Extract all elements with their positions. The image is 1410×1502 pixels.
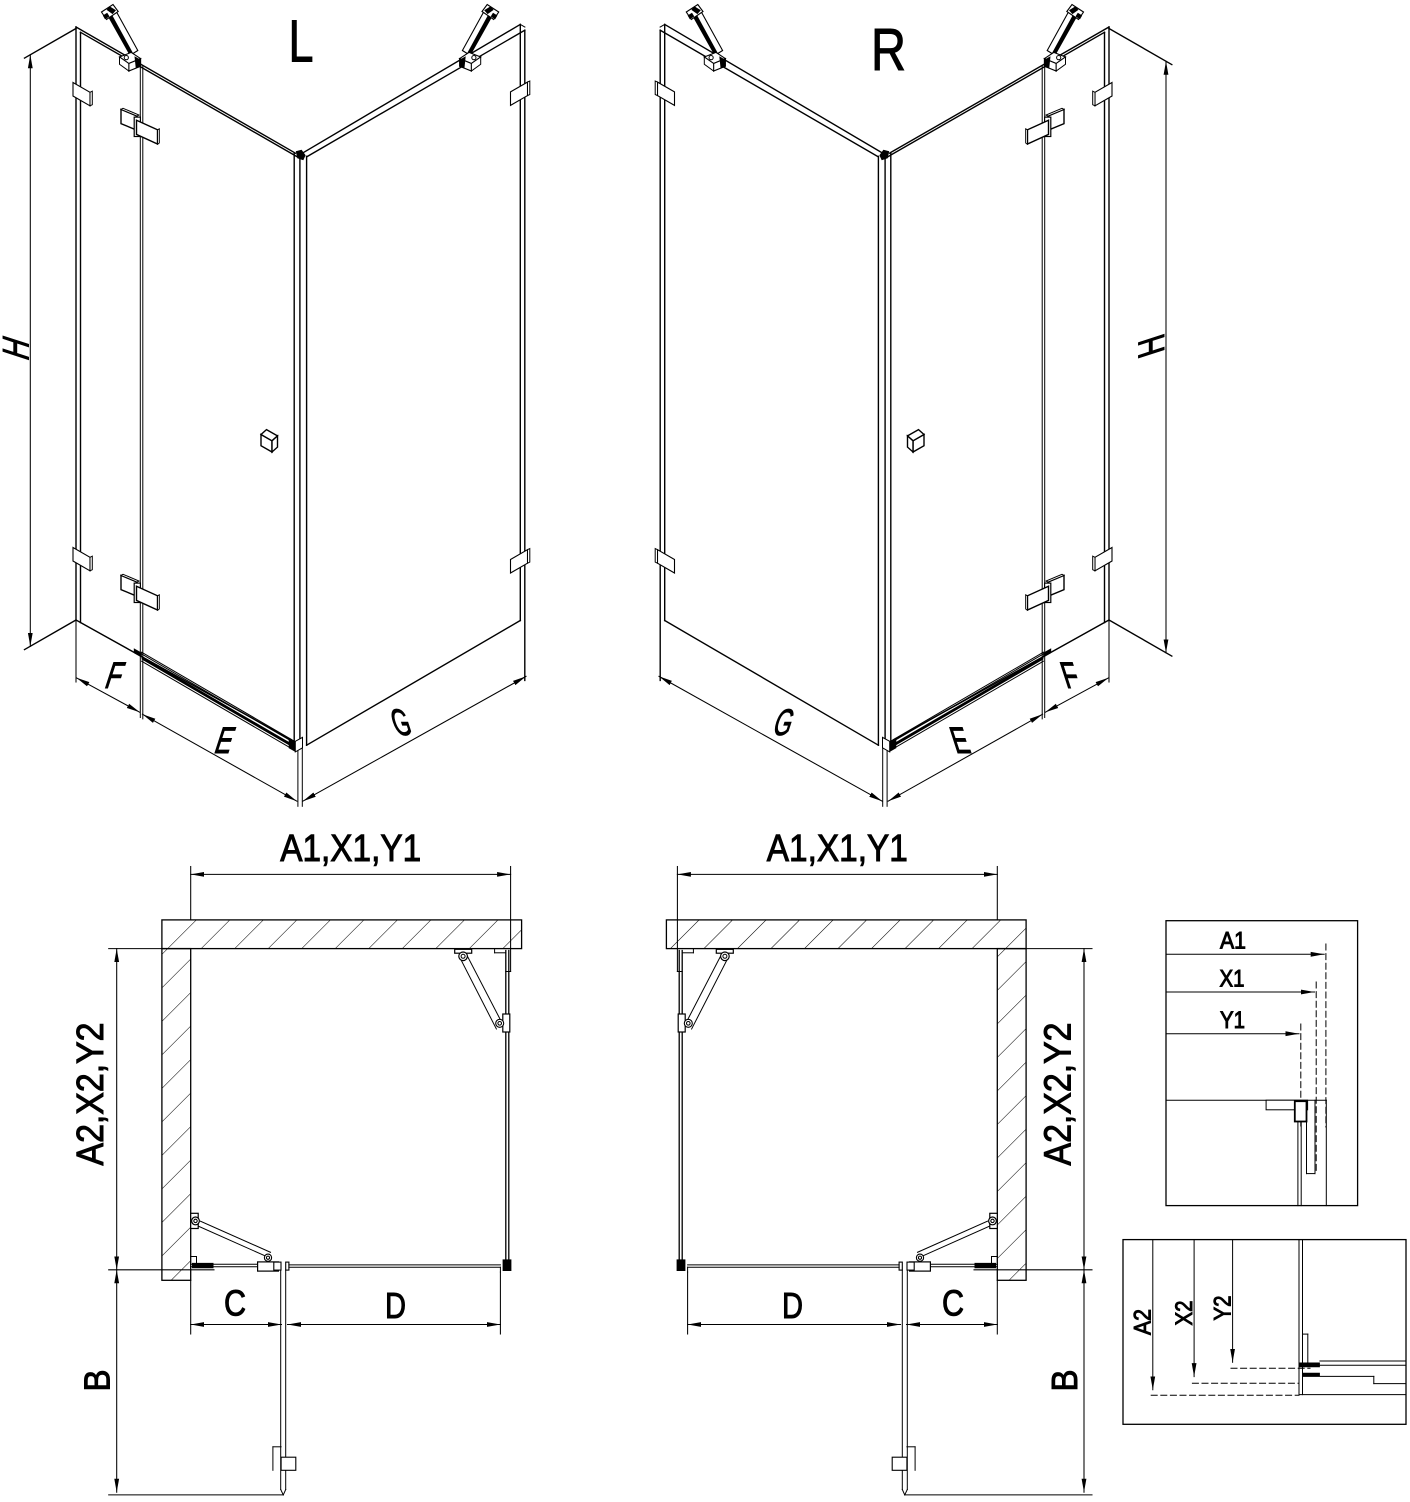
- svg-text:D: D: [385, 1285, 406, 1326]
- svg-text:R: R: [871, 17, 906, 83]
- svg-text:A1,X1,Y1: A1,X1,Y1: [767, 828, 908, 870]
- svg-text:A1,X1,Y1: A1,X1,Y1: [280, 828, 421, 870]
- svg-text:X1: X1: [1220, 966, 1245, 993]
- svg-text:L: L: [289, 9, 314, 75]
- svg-text:C: C: [942, 1282, 964, 1323]
- svg-text:Y1: Y1: [1220, 1007, 1245, 1034]
- svg-text:A1: A1: [1220, 928, 1246, 955]
- svg-text:X2: X2: [1171, 1301, 1198, 1326]
- svg-text:Y2: Y2: [1209, 1296, 1236, 1321]
- svg-text:B: B: [77, 1370, 118, 1392]
- svg-text:D: D: [782, 1285, 803, 1326]
- svg-text:B: B: [1044, 1370, 1085, 1392]
- svg-text:A2: A2: [1130, 1309, 1157, 1335]
- svg-text:C: C: [224, 1282, 246, 1323]
- svg-text:A2,X2,Y2: A2,X2,Y2: [70, 1023, 112, 1166]
- svg-text:A2,X2,Y2: A2,X2,Y2: [1038, 1023, 1080, 1166]
